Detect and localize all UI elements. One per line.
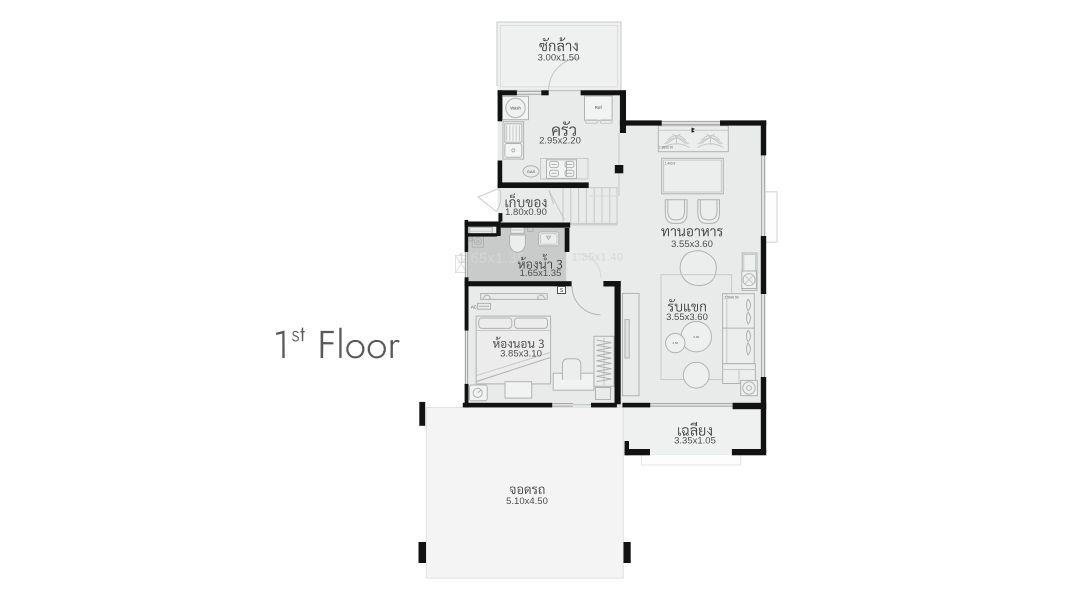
svg-text:Ref: Ref xyxy=(595,105,603,110)
svg-text:1.4x0.9: 1.4x0.9 xyxy=(665,162,676,166)
svg-text:Wash: Wash xyxy=(510,106,521,111)
svg-text:GAS: GAS xyxy=(527,169,536,174)
svg-text:5.10x4.50: 5.10x4.50 xyxy=(506,496,548,507)
svg-text:3.00x1.50: 3.00x1.50 xyxy=(538,53,580,64)
svg-text:0.50: 0.50 xyxy=(673,341,679,345)
svg-text:1.80x0.70: 1.80x0.70 xyxy=(659,146,673,150)
svg-text:1.35x1.40: 1.35x1.40 xyxy=(572,252,624,264)
svg-text:3.85x3.10: 3.85x3.10 xyxy=(500,349,542,360)
svg-text:AC: AC xyxy=(471,305,477,310)
svg-text:1.65x1.35: 1.65x1.35 xyxy=(520,268,562,279)
svg-text:0.60: 0.60 xyxy=(693,335,699,339)
svg-text:2.95x2.20: 2.95x2.20 xyxy=(539,136,581,147)
svg-text:3.35x1.05: 3.35x1.05 xyxy=(674,435,716,446)
svg-text:3.55x3.60: 3.55x3.60 xyxy=(666,312,708,323)
svg-text:1.80x0.90: 1.80x0.90 xyxy=(505,207,547,218)
svg-text:3.55x3.60: 3.55x3.60 xyxy=(671,239,713,250)
